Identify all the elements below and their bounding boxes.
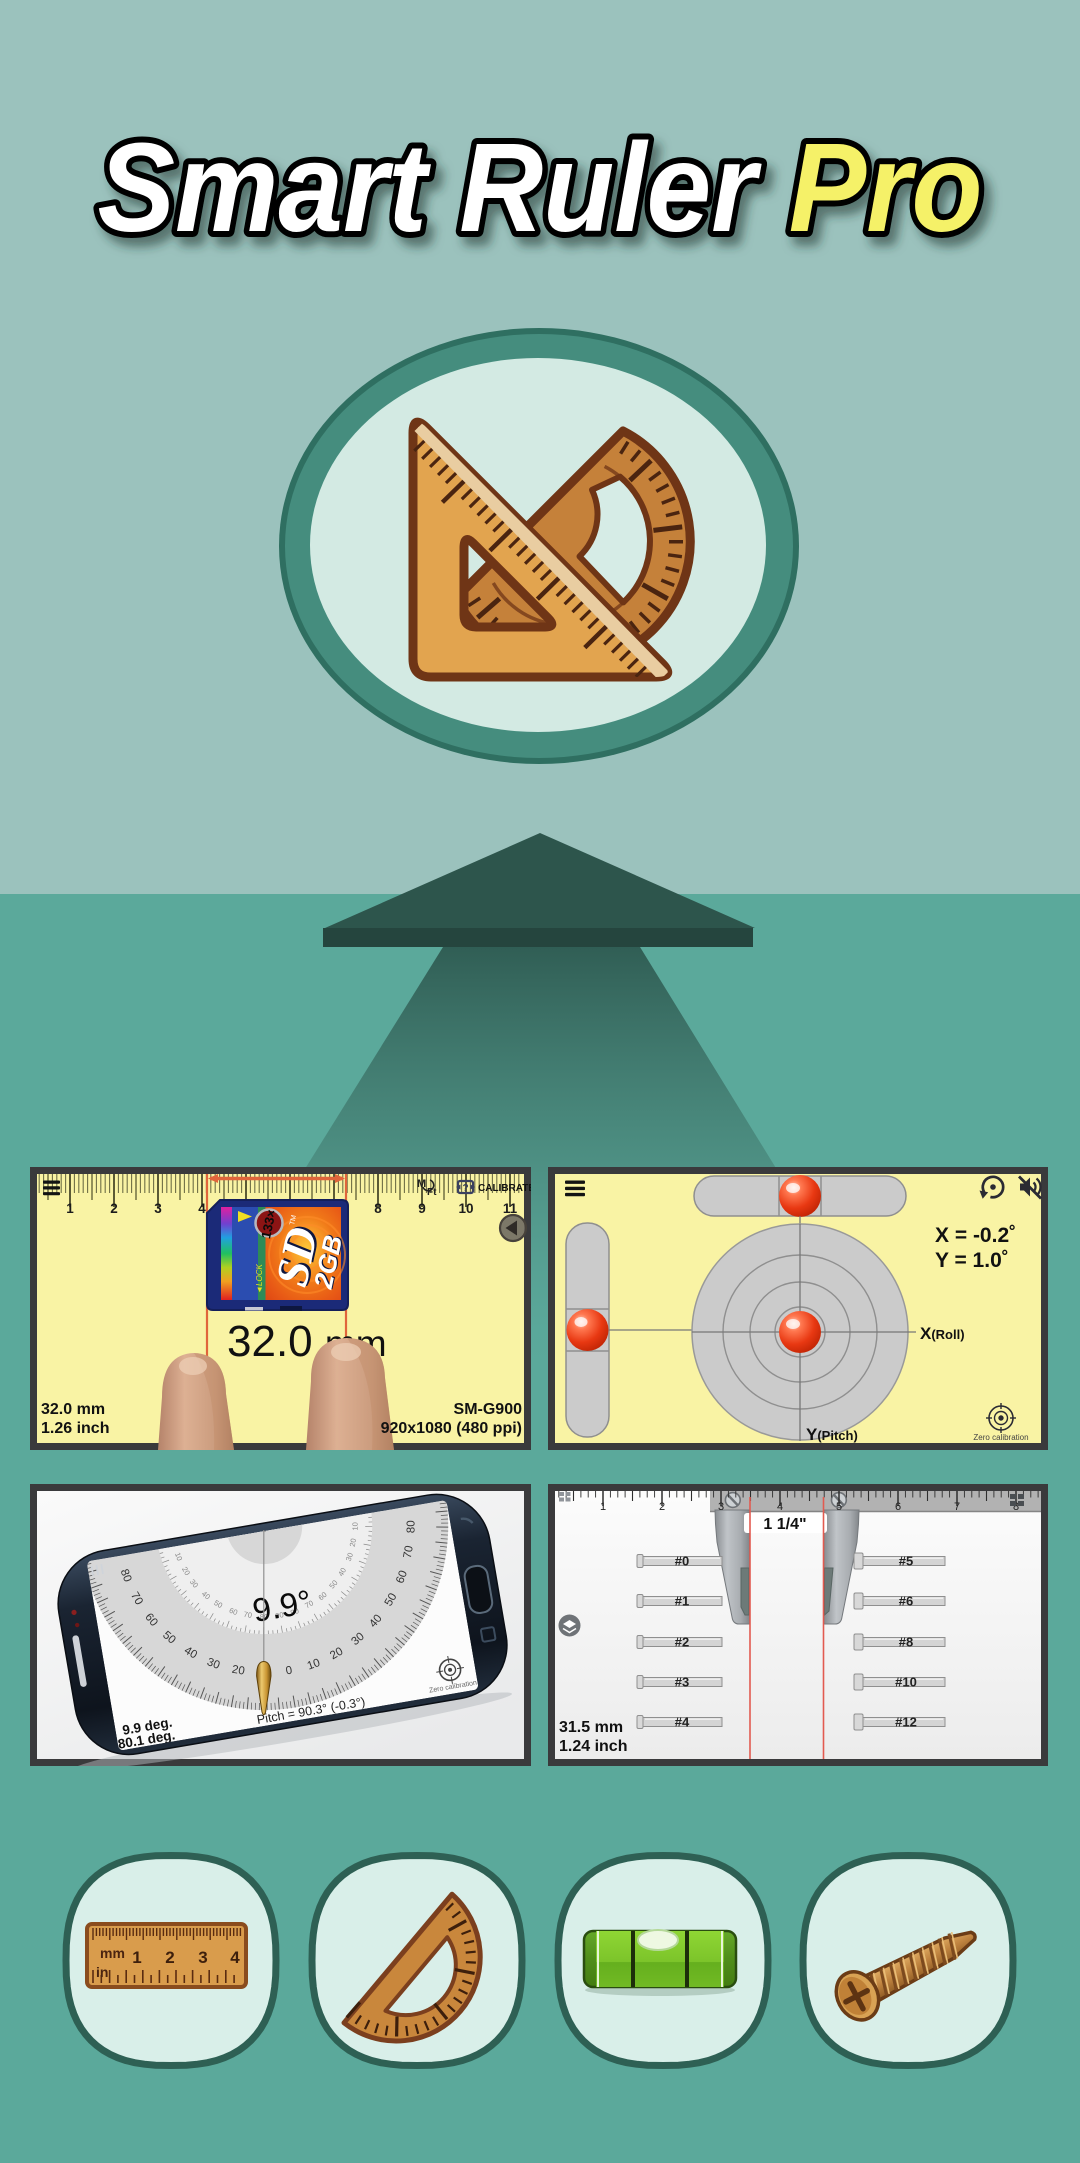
svg-text:5: 5 [836, 1501, 842, 1513]
svg-text:#4: #4 [675, 1715, 690, 1730]
svg-text:Y = 1.0˚: Y = 1.0˚ [935, 1249, 1009, 1272]
svg-text:M: M [417, 1178, 426, 1190]
svg-text:3: 3 [154, 1201, 162, 1216]
svg-text:1: 1 [132, 1948, 141, 1967]
svg-text:#10: #10 [895, 1675, 917, 1690]
svg-text:?: ? [462, 1183, 468, 1194]
svg-text:20: 20 [348, 1538, 358, 1548]
svg-text:2: 2 [110, 1201, 118, 1216]
svg-text:2: 2 [165, 1948, 174, 1967]
svg-text:#6: #6 [899, 1594, 913, 1609]
svg-text:1.24 inch: 1.24 inch [559, 1738, 627, 1755]
svg-text:1: 1 [600, 1501, 606, 1513]
svg-text:10: 10 [458, 1201, 473, 1216]
svg-text:Y(Pitch): Y(Pitch) [806, 1425, 858, 1444]
svg-text:#8: #8 [899, 1635, 913, 1650]
svg-text:X(Roll): X(Roll) [920, 1324, 965, 1343]
svg-text:SM-G900: SM-G900 [454, 1401, 523, 1418]
svg-text:1 1/4": 1 1/4" [763, 1516, 806, 1533]
svg-text:70: 70 [243, 1610, 253, 1620]
svg-text:2: 2 [659, 1501, 665, 1513]
svg-text:11: 11 [503, 1201, 518, 1216]
svg-text:CALIBRATE: CALIBRATE [478, 1183, 531, 1194]
svg-text:4: 4 [230, 1948, 240, 1967]
svg-text:10: 10 [351, 1522, 360, 1530]
svg-text:3: 3 [718, 1501, 724, 1513]
svg-text:920x1080 (480 ppi): 920x1080 (480 ppi) [381, 1420, 522, 1437]
svg-text:#12: #12 [895, 1715, 917, 1730]
svg-text:7: 7 [954, 1501, 960, 1513]
svg-text:X = -0.2˚: X = -0.2˚ [935, 1224, 1016, 1247]
svg-text:31.5 mm: 31.5 mm [559, 1719, 623, 1736]
svg-text:8: 8 [374, 1201, 382, 1216]
svg-text:6: 6 [895, 1501, 901, 1513]
svg-text:80: 80 [405, 1520, 417, 1533]
svg-text:#1: #1 [675, 1594, 689, 1609]
svg-text:#0: #0 [675, 1554, 689, 1569]
svg-text:Zero calibration: Zero calibration [973, 1433, 1028, 1442]
svg-text:#5: #5 [899, 1554, 913, 1569]
svg-text:4: 4 [777, 1501, 783, 1513]
svg-text:70: 70 [402, 1545, 416, 1560]
svg-text:20: 20 [231, 1664, 246, 1678]
svg-text:#2: #2 [675, 1635, 689, 1650]
svg-text:#3: #3 [675, 1675, 689, 1690]
svg-text:9: 9 [418, 1201, 426, 1216]
svg-text:Smart Ruler Pro: Smart Ruler Pro [98, 117, 983, 258]
svg-text:mm: mm [100, 1945, 125, 1961]
svg-text:1: 1 [66, 1201, 74, 1216]
svg-text:◄LOCK: ◄LOCK [255, 1263, 264, 1293]
svg-text:3: 3 [198, 1948, 207, 1967]
svg-text:4: 4 [198, 1201, 206, 1216]
svg-text:1.26 inch: 1.26 inch [41, 1420, 109, 1437]
svg-text:in: in [96, 1964, 108, 1980]
svg-text:32.0 mm: 32.0 mm [41, 1401, 105, 1418]
